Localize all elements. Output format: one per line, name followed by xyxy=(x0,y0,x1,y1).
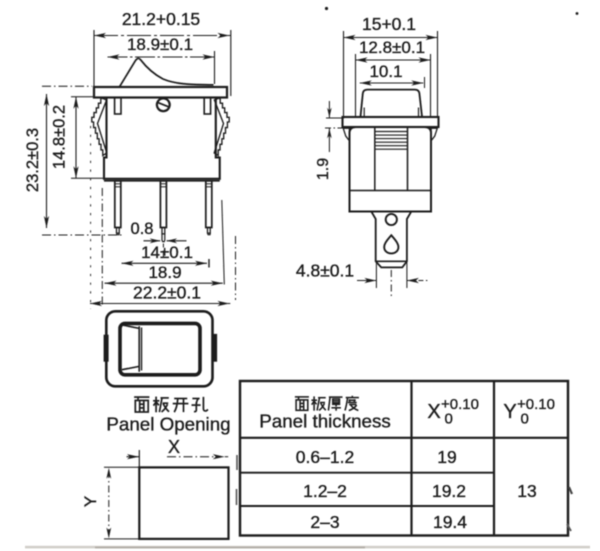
svg-text:4.8±0.1: 4.8±0.1 xyxy=(296,261,354,281)
svg-text:X: X xyxy=(427,401,440,423)
svg-text:Y: Y xyxy=(81,496,100,507)
svg-text:X: X xyxy=(168,437,180,457)
svg-text:0.8: 0.8 xyxy=(131,220,154,238)
svg-text:14.8±0.2: 14.8±0.2 xyxy=(51,105,69,169)
svg-text:13: 13 xyxy=(517,481,536,501)
svg-text:12.8±0.1: 12.8±0.1 xyxy=(359,38,425,57)
svg-text:22.2±0.1: 22.2±0.1 xyxy=(133,283,201,303)
svg-text:0: 0 xyxy=(445,411,453,428)
svg-text:19.4: 19.4 xyxy=(433,512,467,532)
svg-text:1.9: 1.9 xyxy=(315,158,332,180)
svg-text:10.1: 10.1 xyxy=(369,62,402,81)
svg-text:0.6–1.2: 0.6–1.2 xyxy=(296,447,354,467)
svg-text:19.2: 19.2 xyxy=(432,481,466,501)
svg-text:14±0.1: 14±0.1 xyxy=(141,243,193,262)
svg-text:15+0.1: 15+0.1 xyxy=(362,14,416,34)
svg-text:2–3: 2–3 xyxy=(310,512,339,532)
svg-text:Panel Opening: Panel Opening xyxy=(106,414,230,435)
svg-text:21.2+0.15: 21.2+0.15 xyxy=(122,9,200,29)
svg-text:18.9±0.1: 18.9±0.1 xyxy=(127,35,193,54)
svg-text:19: 19 xyxy=(437,447,456,467)
svg-text:18.9: 18.9 xyxy=(148,263,181,282)
svg-text:1.2–2: 1.2–2 xyxy=(303,481,347,501)
svg-text:0: 0 xyxy=(521,411,529,428)
svg-text:Panel thickness: Panel thickness xyxy=(259,411,391,432)
svg-text:Y: Y xyxy=(503,401,516,423)
svg-text:23.2±0.3: 23.2±0.3 xyxy=(24,128,42,192)
